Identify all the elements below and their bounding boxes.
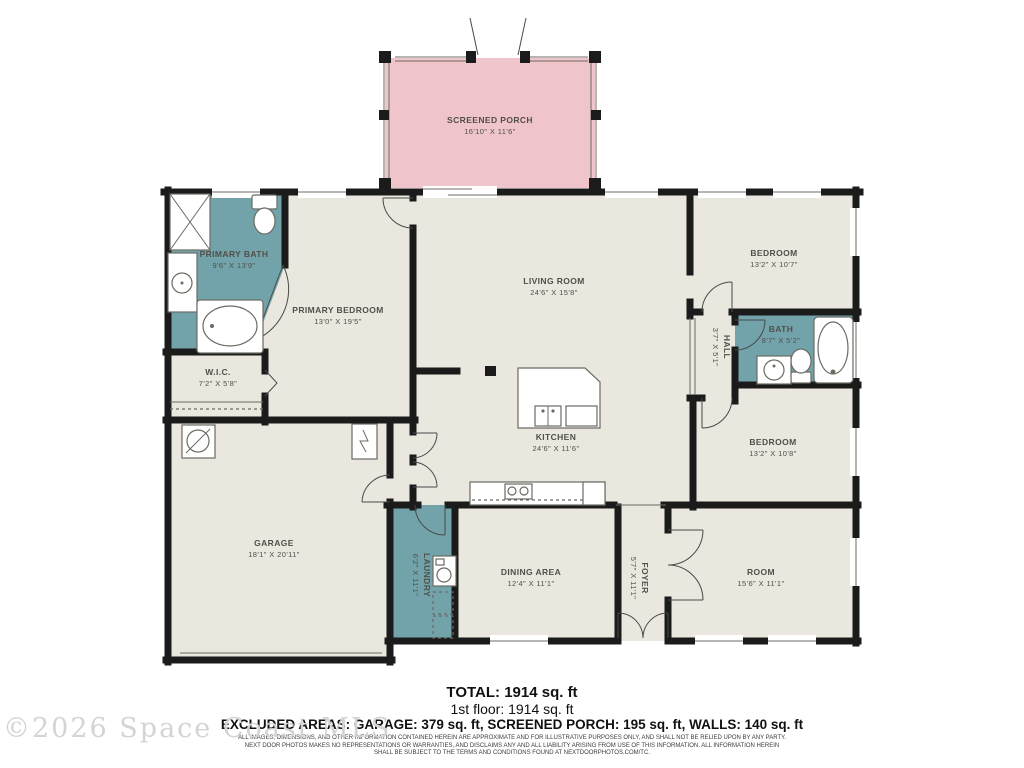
room-name: PRIMARY BEDROOM bbox=[292, 304, 383, 316]
label-foyer: FOYER 5'7" X 11'1" bbox=[627, 557, 651, 599]
room-name: KITCHEN bbox=[536, 431, 577, 443]
slider-door bbox=[423, 186, 497, 198]
total-area-text: TOTAL: 1914 sq. ft bbox=[0, 684, 1024, 701]
room-dims: 7'2" X 5'8" bbox=[199, 378, 237, 390]
label-living-room: LIVING ROOM 24'6" X 15'8" bbox=[523, 275, 585, 299]
room-dims: 13'2" X 10'8" bbox=[749, 448, 797, 460]
room-name: LAUNDRY bbox=[421, 553, 433, 597]
room-dims: 24'6" X 11'6" bbox=[532, 443, 579, 455]
room-name: DINING AREA bbox=[501, 566, 561, 578]
label-primary-bedroom: PRIMARY BEDROOM 13'0" X 19'5" bbox=[292, 304, 383, 328]
disclaimer-line-3: SHALL BE SUBJECT TO THE TERMS AND CONDIT… bbox=[0, 750, 1024, 758]
room-dims: 15'6" X 11'1" bbox=[737, 578, 784, 590]
label-kitchen: KITCHEN 24'6" X 11'6" bbox=[532, 431, 579, 455]
room-dims: 6'2" X 11'1" bbox=[409, 554, 421, 596]
room-dims: 5'7" X 11'1" bbox=[627, 557, 639, 599]
room-name: SCREENED PORCH bbox=[447, 114, 533, 126]
label-hall: HALL 3'7" X 5'1" bbox=[709, 328, 733, 366]
room-name: W.I.C. bbox=[205, 366, 231, 378]
room-dims: 3'7" X 5'1" bbox=[709, 328, 721, 366]
floor-plan-page: SCREENED PORCH 16'10" X 11'6" PRIMARY BA… bbox=[0, 0, 1024, 768]
room-name: FOYER bbox=[639, 562, 651, 593]
mls-watermark: ©2026 Space Coast MLS bbox=[3, 713, 391, 744]
room-name: LIVING ROOM bbox=[523, 275, 585, 287]
porch-entry-door bbox=[470, 18, 478, 55]
room-dims: 8'7" X 5'2" bbox=[762, 335, 800, 347]
room-dims: 12'4" X 11'1" bbox=[507, 578, 554, 590]
room-name: BEDROOM bbox=[750, 247, 797, 259]
label-screened-porch: SCREENED PORCH 16'10" X 11'6" bbox=[447, 114, 533, 138]
room-name: PRIMARY BATH bbox=[200, 248, 269, 260]
label-primary-bath: PRIMARY BATH 9'6" X 13'9" bbox=[200, 248, 269, 272]
toilet bbox=[252, 195, 277, 209]
label-bedroom-1: BEDROOM 13'2" X 10'7" bbox=[750, 247, 798, 271]
room-name: BATH bbox=[769, 323, 794, 335]
room-name: ROOM bbox=[747, 566, 775, 578]
room-dims: 13'2" X 10'7" bbox=[750, 259, 798, 271]
label-garage: GARAGE 18'1" X 20'11" bbox=[248, 537, 300, 561]
label-laundry: LAUNDRY 6'2" X 11'1" bbox=[409, 553, 433, 597]
room-dims: 24'6" X 15'8" bbox=[530, 287, 578, 299]
room-dims: 18'1" X 20'11" bbox=[248, 549, 300, 561]
room-name: HALL bbox=[721, 335, 733, 359]
label-dining-area: DINING AREA 12'4" X 11'1" bbox=[501, 566, 561, 590]
room-dims: 9'6" X 13'9" bbox=[212, 260, 255, 272]
label-bedroom-2: BEDROOM 13'2" X 10'8" bbox=[749, 436, 797, 460]
room-name: GARAGE bbox=[254, 537, 294, 549]
label-room: ROOM 15'6" X 11'1" bbox=[737, 566, 784, 590]
toilet-2 bbox=[791, 372, 811, 383]
room-dims: 16'10" X 11'6" bbox=[464, 126, 516, 138]
label-bath: BATH 8'7" X 5'2" bbox=[762, 323, 800, 347]
room-dims: 13'0" X 19'5" bbox=[314, 316, 362, 328]
label-wic: W.I.C. 7'2" X 5'8" bbox=[199, 366, 237, 390]
room-name: BEDROOM bbox=[749, 436, 796, 448]
